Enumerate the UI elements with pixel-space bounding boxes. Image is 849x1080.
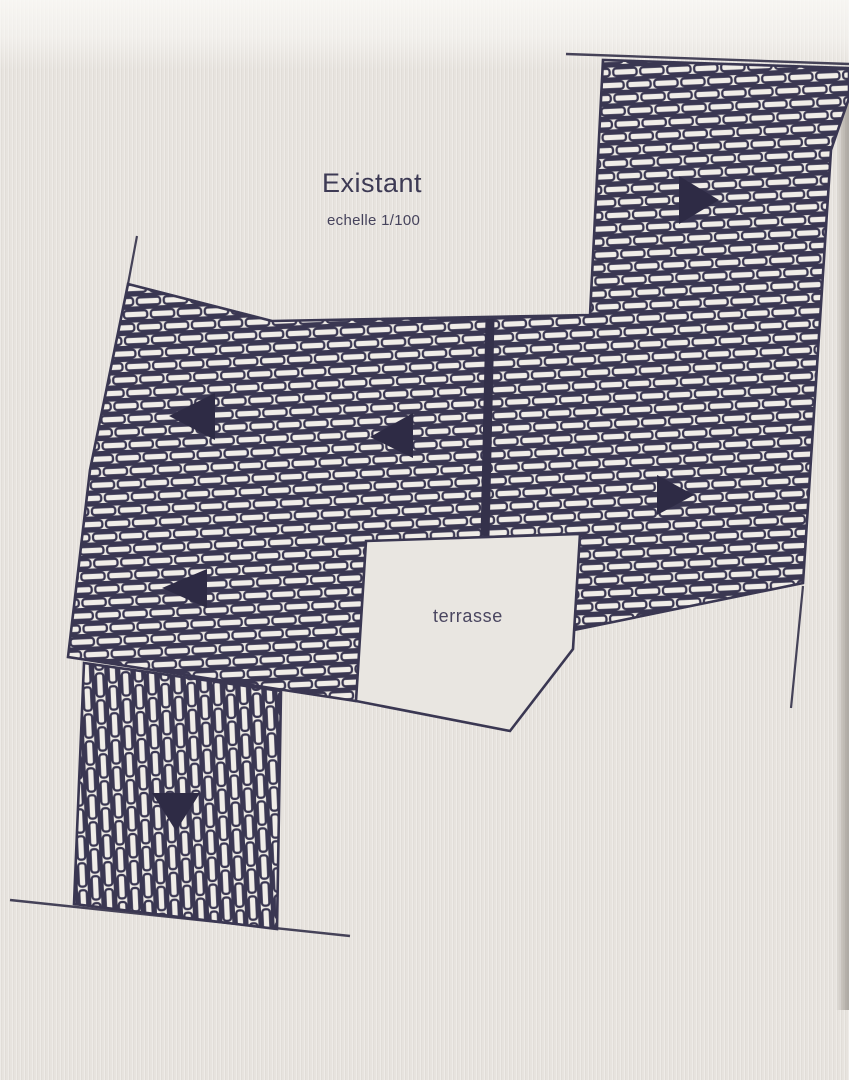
photographed-plan: Existant echelle 1/100 terrasse <box>0 0 849 1080</box>
drawing-title: Existant <box>322 168 422 199</box>
terrace-label: terrasse <box>433 606 503 627</box>
drawing-scale-note: echelle 1/100 <box>327 212 420 229</box>
boundary-line-right-stub <box>791 586 803 708</box>
terrace-area <box>356 534 580 731</box>
roof-plan-drawing <box>0 0 849 1080</box>
boundary-line-left-stub <box>128 236 137 284</box>
ridge-line <box>485 319 490 536</box>
